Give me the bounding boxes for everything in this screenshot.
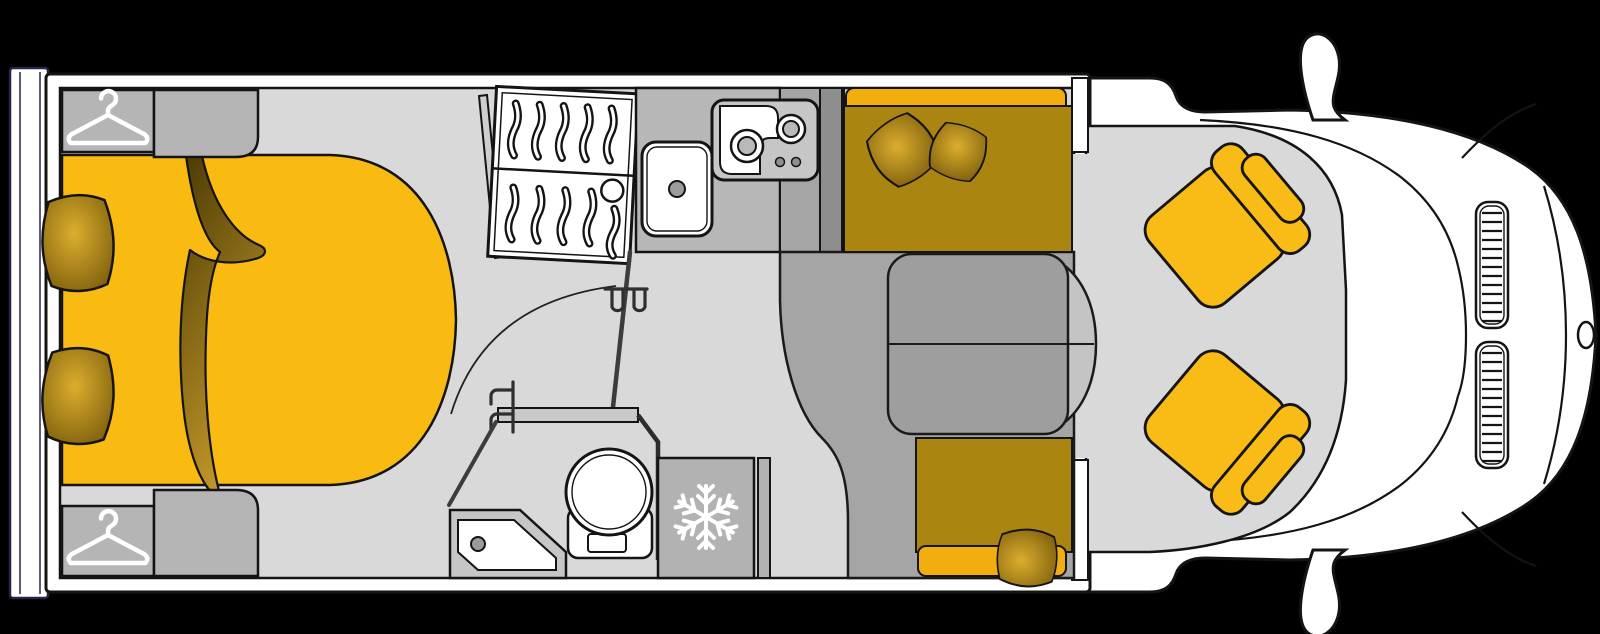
grille-vent-top	[1476, 202, 1508, 328]
partition-pillar	[820, 88, 842, 260]
wardrobe-top-inner	[154, 90, 258, 157]
kitchen-sink	[642, 142, 712, 236]
wardrobe-bottom-outer	[62, 506, 154, 576]
hob-unit	[712, 100, 818, 180]
floorplan-canvas	[0, 0, 1600, 634]
bench-pillow	[996, 528, 1058, 588]
bathroom-partition	[498, 408, 638, 422]
kitchen-area	[636, 88, 844, 260]
floorplan-stage	[0, 0, 1600, 634]
grille-vent-bottom	[1476, 342, 1508, 468]
hob-knob	[792, 158, 801, 167]
sink-drain	[669, 181, 685, 197]
hob-knob	[776, 158, 785, 167]
wardrobe-bottom-inner	[154, 490, 258, 576]
shower-drain	[471, 537, 485, 551]
bed-pillow-bottom	[40, 346, 116, 446]
cab-partition-wall-top	[1072, 78, 1088, 152]
fridge	[658, 458, 770, 578]
island-bed	[62, 155, 456, 485]
bed-pillow-top	[41, 194, 115, 292]
rear-bumper	[10, 68, 48, 598]
clothes-cupboard	[479, 86, 638, 263]
front-badge	[1578, 322, 1594, 348]
fridge-divider	[758, 458, 770, 578]
toilet	[566, 449, 652, 558]
